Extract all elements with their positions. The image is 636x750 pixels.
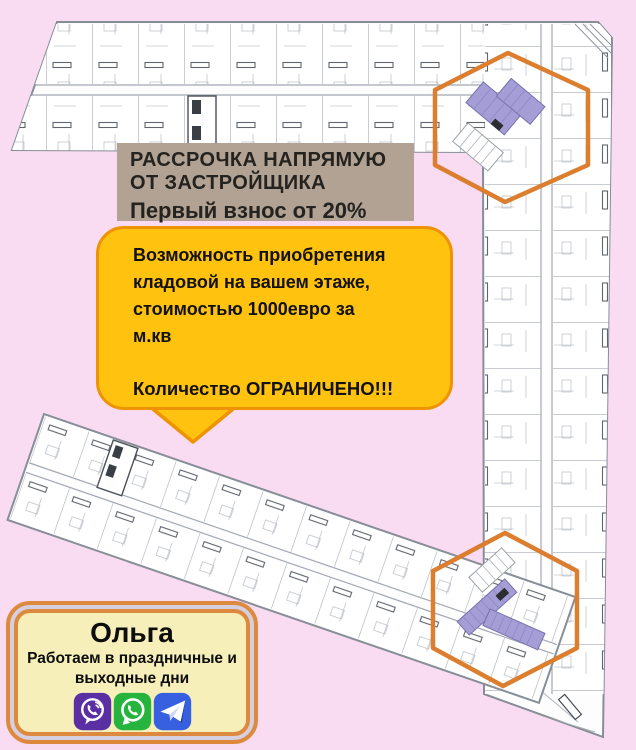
offer-warning: Количество ОГРАНИЧЕНО!!! [133,375,440,402]
viber-icon[interactable] [73,692,112,731]
offer-line: м.кв [133,323,440,350]
contact-note-line2: выходные дни [18,669,246,689]
contact-note-line1: Работаем в праздничные и [18,649,246,669]
bubble-tail [148,405,238,442]
messenger-icons [18,692,246,731]
offer-line: кладовой на вашем этаже, [133,269,440,296]
offer-line: стоимостью 1000евро за [133,296,440,323]
offer-bubble: Возможность приобретения кладовой на ваш… [96,226,453,410]
promo-line3: Первый взнос от 20% [130,197,414,224]
offer-line: Возможность приобретения [133,242,440,269]
promo-line1: РАССРОЧКА НАПРЯМУЮ [130,149,414,172]
promo-line2: ОТ ЗАСТРОЙЩИКА [130,172,414,195]
whatsapp-icon[interactable] [113,692,152,731]
contact-card: Ольга Работаем в праздничные и выходные … [6,601,258,744]
telegram-icon[interactable] [153,692,192,731]
promo-banner: РАССРОЧКА НАПРЯМУЮ ОТ ЗАСТРОЙЩИКА Первый… [117,143,414,221]
contact-name: Ольга [18,617,246,649]
flyer: РАССРОЧКА НАПРЯМУЮ ОТ ЗАСТРОЙЩИКА Первый… [0,0,636,750]
